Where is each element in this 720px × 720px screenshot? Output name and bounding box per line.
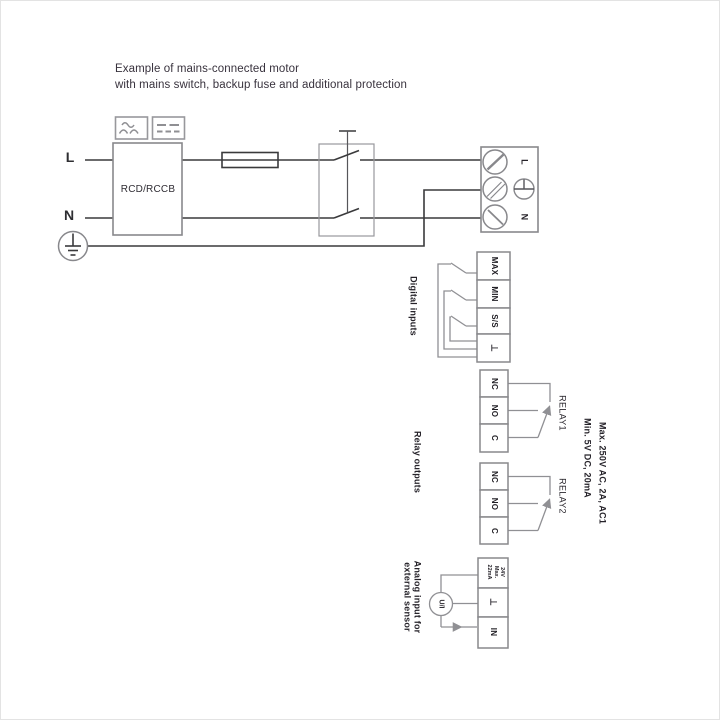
digital-input-switches: [438, 263, 477, 357]
relay1-contact: [508, 384, 550, 438]
analog-section-label-line1: Analog input for: [413, 561, 422, 634]
terminal-label-l: L: [520, 159, 529, 165]
relay-outputs-section-label: Relay outputs: [413, 431, 422, 493]
terminal-label-24v: 24V: [498, 567, 504, 577]
screw-terminal-l: [483, 150, 507, 174]
earth-symbol: [59, 232, 88, 261]
mains-switch: [319, 131, 374, 236]
terminal-label-digital-ground: ⊥: [489, 344, 498, 352]
terminal-label-analog-ground: ⊥: [488, 598, 497, 606]
terminal-label-24v-max: Max.: [492, 566, 498, 578]
diagram-graphics: [0, 0, 720, 720]
rcd-type-a-icon: [116, 117, 148, 139]
transducer-label: U/I: [438, 600, 445, 609]
terminal-label-ss: S/S: [490, 314, 498, 328]
wiring-diagram: Example of mains-connected motor with ma…: [0, 0, 720, 720]
terminal-label-relay2-c: C: [490, 528, 498, 534]
rcd-label: RCD/RCCB: [121, 185, 175, 195]
title-line1: Example of mains-connected motor: [115, 61, 407, 77]
relay2-label: RELAY2: [558, 478, 567, 514]
terminal-label-relay2-no: NO: [490, 497, 498, 509]
neutral-label: N: [64, 208, 74, 222]
phase-label: L: [66, 150, 75, 164]
title-line2: with mains switch, backup fuse and addit…: [115, 77, 407, 93]
digital-inputs-section-label: Digital inputs: [409, 276, 418, 336]
screw-terminal-n: [483, 205, 507, 229]
terminal-label-24v-current: 22mA: [485, 565, 491, 580]
relay-rating-max-label: Max. 250V AC, 2A, AC1: [598, 422, 607, 524]
analog-section-label-line2: external sensor: [402, 562, 411, 632]
terminal-label-relay2-nc: NC: [490, 471, 498, 483]
rcd-type-dc-icon: [153, 117, 185, 139]
terminal-label-relay1-nc: NC: [490, 378, 498, 390]
terminal-label-relay1-c: C: [490, 435, 498, 441]
relay-rating-min-label: Min. 5V DC, 20mA: [583, 418, 592, 498]
terminal-label-in: IN: [489, 628, 497, 636]
terminal-label-relay1-no: NO: [490, 404, 498, 416]
screw-terminal-pe: [483, 177, 507, 201]
diagram-title: Example of mains-connected motor with ma…: [115, 61, 407, 93]
relay1-label: RELAY1: [558, 395, 567, 431]
terminal-label-n: N: [520, 214, 529, 221]
terminal-label-min: MIN: [490, 286, 498, 301]
relay2-contact: [508, 477, 550, 531]
terminal-label-max: MAX: [490, 257, 498, 275]
